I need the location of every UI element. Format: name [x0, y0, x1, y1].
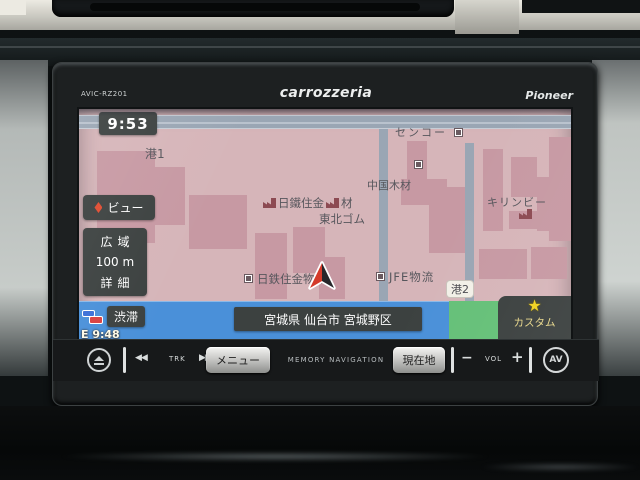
diamond-icon	[94, 202, 102, 213]
button-bracket	[451, 347, 454, 373]
vent-divider	[455, 0, 519, 34]
memory-navigation-label: MEMORY NAVIGATION	[281, 356, 391, 364]
star-icon: ★	[498, 296, 571, 316]
factory-icon	[326, 198, 339, 208]
map-building	[255, 233, 287, 299]
map-building	[189, 195, 247, 249]
map-label-nittetsu-kenzai: 日鐵住金 材	[263, 195, 353, 211]
dash-reflection	[60, 452, 490, 461]
dash-side-right	[592, 60, 640, 376]
screen-shade	[79, 109, 571, 116]
eta-text: E 9:48	[81, 328, 120, 339]
custom-button[interactable]: ★ カスタム	[498, 296, 571, 339]
av-button[interactable]: AV	[543, 347, 569, 373]
navigation-cursor-icon	[307, 261, 337, 291]
map-building	[479, 249, 527, 279]
map-label-tohoku-gomu: 東北ゴム	[319, 211, 365, 227]
dash-edge-highlight	[0, 46, 640, 48]
volume-up-button[interactable]: +	[511, 348, 524, 366]
factory-icon	[263, 198, 276, 208]
air-vent-right	[522, 0, 640, 13]
pioneer-logo: Pioneer	[525, 89, 573, 102]
button-bracket	[529, 347, 532, 373]
traffic-info[interactable]: 渋滞	[82, 306, 145, 327]
traffic-cars-icon	[82, 309, 104, 325]
scale-panel: 広域 100 m 詳細	[83, 228, 147, 296]
map-road	[465, 143, 474, 301]
vol-label: VOL	[485, 355, 502, 363]
car-dashboard: AVIC-RZ201 carrozzeria Pioneer	[0, 0, 640, 480]
factory-icon	[519, 209, 532, 219]
view-button[interactable]: ビュー	[83, 195, 155, 220]
traffic-badge: 渋滞	[107, 306, 145, 327]
dash-corner	[0, 0, 26, 15]
custom-label: カスタム	[498, 315, 571, 330]
zoom-wide-button[interactable]: 広域	[95, 233, 134, 250]
carrozzeria-logo: carrozzeria	[53, 85, 599, 101]
map-building	[511, 157, 537, 197]
dash-reflection	[480, 463, 640, 471]
company-marker-icon	[245, 275, 252, 282]
address-bar: 宮城県 仙台市 宮城野区	[234, 307, 422, 331]
map-label-kirin-beer: キリンビー	[487, 194, 547, 210]
map-building	[531, 247, 567, 279]
map-label-senko: センコー	[395, 124, 447, 140]
company-marker-icon	[415, 161, 422, 168]
company-marker-icon	[455, 129, 462, 136]
air-vent	[52, 0, 454, 17]
company-marker-icon	[377, 273, 384, 280]
map-label-jfe-logistics: JFE物流	[389, 269, 434, 285]
hardware-button-bar: ◀◀ TRK ▶▶ メニュー MEMORY NAVIGATION 現在地 − V…	[53, 339, 599, 381]
map-building	[483, 149, 503, 231]
navigation-head-unit: AVIC-RZ201 carrozzeria Pioneer	[52, 62, 598, 406]
vent-blade[interactable]	[90, 3, 420, 11]
menu-button[interactable]: メニュー	[206, 347, 270, 373]
scale-value: 100 m	[96, 255, 134, 269]
map-label-port2: 港2	[447, 281, 473, 297]
dash-side-left	[0, 60, 48, 376]
track-prev-button[interactable]: ◀◀	[135, 353, 147, 363]
map-park	[449, 301, 503, 339]
eject-button[interactable]	[87, 348, 111, 372]
map-screen[interactable]: 港1 センコー 中国木材 日鐵住金 材 東北ゴム キリンビー 日鉄住金物流 JF…	[79, 109, 571, 339]
map-building	[429, 187, 465, 253]
eject-icon	[94, 356, 104, 361]
zoom-detail-button[interactable]: 詳細	[95, 274, 134, 291]
volume-down-button[interactable]: −	[461, 350, 473, 366]
trk-label: TRK	[169, 355, 186, 363]
map-building	[549, 137, 571, 241]
current-location-button[interactable]: 現在地	[393, 347, 445, 373]
map-label-chugoku-lumber: 中国木材	[367, 177, 411, 193]
map-label-port1: 港1	[145, 145, 165, 162]
button-bracket	[123, 347, 126, 373]
